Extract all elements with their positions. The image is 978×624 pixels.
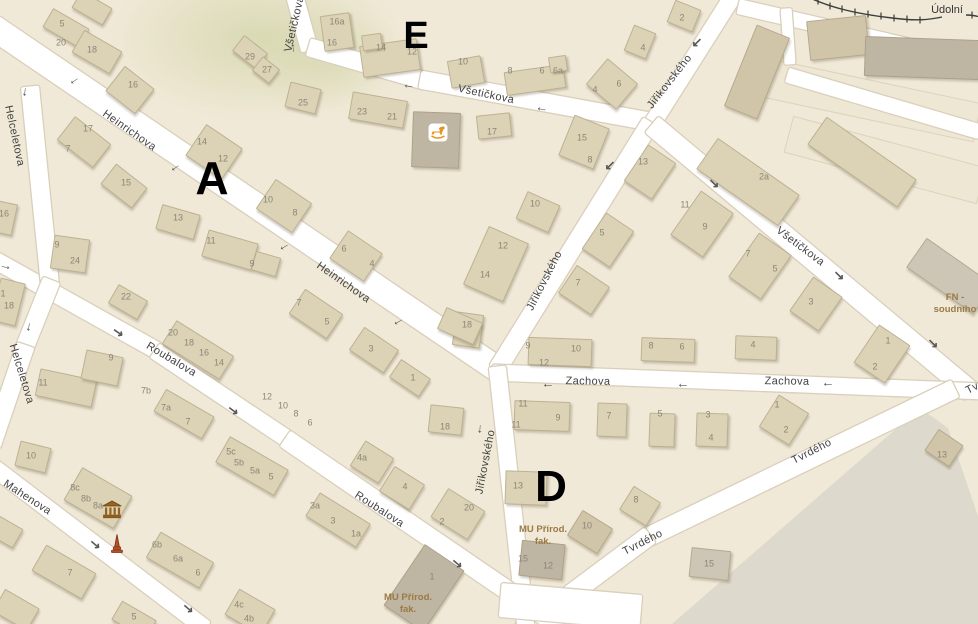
house-number: 3 xyxy=(705,411,710,420)
house-number: 20 xyxy=(56,39,66,48)
building xyxy=(759,394,810,445)
house-number: 10 xyxy=(278,402,288,411)
house-number: 18 xyxy=(4,302,14,311)
house-number: 4 xyxy=(592,86,597,95)
one-way-arrow-icon: ← xyxy=(542,377,555,390)
house-number: 2 xyxy=(872,363,877,372)
house-number: 16a xyxy=(329,18,344,27)
house-number: 10 xyxy=(571,345,581,354)
one-way-arrow-icon: ← xyxy=(534,99,549,114)
house-number: 21 xyxy=(387,113,397,122)
house-number: 6a xyxy=(553,67,563,76)
house-number: 14 xyxy=(480,271,490,280)
one-way-arrow-icon: ↙ xyxy=(605,159,616,172)
monument-icon[interactable] xyxy=(110,534,124,559)
street-label: Helceletova xyxy=(2,105,26,168)
house-number: 16 xyxy=(0,210,9,219)
building xyxy=(619,486,661,527)
house-number: 4 xyxy=(708,434,713,443)
house-number: 7 xyxy=(65,145,70,154)
house-number: 5c xyxy=(226,448,236,457)
street-label: Údolní xyxy=(931,4,963,16)
poi-label: MU Přírod.fak. xyxy=(519,524,567,548)
house-number: 4 xyxy=(402,483,407,492)
house-number: 12 xyxy=(498,242,508,251)
one-way-arrow-icon: ↘ xyxy=(834,269,845,282)
map-marker-a: A xyxy=(195,155,228,201)
house-number: 1 xyxy=(774,401,779,410)
house-number: 23 xyxy=(357,108,367,117)
house-number: 5 xyxy=(657,410,662,419)
one-way-arrow-icon: ↘ xyxy=(89,537,101,551)
building xyxy=(596,402,627,437)
building xyxy=(251,251,282,277)
house-number: 1 xyxy=(429,573,434,582)
house-number: 8 xyxy=(292,209,297,218)
house-number: 2 xyxy=(783,426,788,435)
house-number: 9 xyxy=(249,260,254,269)
museum-icon[interactable] xyxy=(102,501,122,524)
house-number: 1 xyxy=(885,337,890,346)
building xyxy=(153,389,214,440)
house-number: 18 xyxy=(184,339,194,348)
house-number: 4 xyxy=(750,341,755,350)
street-label: Zachova xyxy=(565,376,610,388)
house-number: 5b xyxy=(234,459,244,468)
house-number: 15 xyxy=(577,134,587,143)
one-way-arrow-icon: ↓ xyxy=(476,421,484,435)
house-number: 7 xyxy=(185,418,190,427)
house-number: 6 xyxy=(679,343,684,352)
one-way-arrow-icon: ↘ xyxy=(182,601,194,615)
house-number: 1 xyxy=(410,374,415,383)
house-number: 9 xyxy=(525,342,530,351)
building xyxy=(528,337,593,367)
one-way-arrow-icon: ← xyxy=(402,77,417,92)
poi-label-line: FN - xyxy=(934,292,977,304)
house-number: 11 xyxy=(511,421,520,430)
house-number: 8a xyxy=(93,502,103,511)
house-number: 18 xyxy=(462,321,472,330)
house-number: 1 xyxy=(0,290,5,299)
house-number: 8 xyxy=(648,342,653,351)
house-number: 29 xyxy=(245,53,255,62)
building xyxy=(108,284,148,320)
house-number: 4 xyxy=(640,44,645,53)
house-number: 6 xyxy=(307,419,312,428)
house-number: 4 xyxy=(369,260,374,269)
building xyxy=(567,510,613,555)
house-number: 10 xyxy=(263,196,273,205)
house-number: 7 xyxy=(67,569,72,578)
house-number: 16 xyxy=(128,81,138,90)
poi-label: FN -soudního xyxy=(934,292,977,316)
house-number: 3a xyxy=(310,502,320,511)
house-number: 18 xyxy=(440,423,450,432)
house-number: 16 xyxy=(199,349,209,358)
house-number: 8 xyxy=(293,410,298,419)
house-number: 16 xyxy=(327,39,337,48)
poi-label-line: soudního xyxy=(934,304,977,316)
house-number: 12 xyxy=(262,393,272,402)
house-number: 6 xyxy=(539,67,544,76)
house-number: 2a xyxy=(759,173,769,182)
house-number: 5 xyxy=(268,473,273,482)
house-number: 8 xyxy=(507,67,512,76)
house-number: 9 xyxy=(702,223,707,232)
house-number: 9 xyxy=(108,354,113,363)
one-way-arrow-icon: ↘ xyxy=(709,177,720,190)
house-number: 10 xyxy=(530,200,540,209)
house-number: 13 xyxy=(173,214,183,223)
house-number: 6 xyxy=(341,245,346,254)
house-number: 4c xyxy=(234,601,244,610)
house-number: 14 xyxy=(376,44,386,53)
house-number: 4b xyxy=(244,615,254,624)
house-number: 14 xyxy=(197,138,207,147)
house-number: 7 xyxy=(575,279,580,288)
building xyxy=(735,335,778,360)
building xyxy=(463,226,529,302)
house-number: 4a xyxy=(357,454,367,463)
poi-label: MU Přírod.fak. xyxy=(384,592,432,616)
building xyxy=(289,289,344,340)
house-number: 2 xyxy=(679,14,684,23)
house-number: 2 xyxy=(439,518,444,527)
house-number: 12 xyxy=(543,562,553,571)
building xyxy=(0,589,40,624)
house-number: 5 xyxy=(324,318,329,327)
house-number: 18 xyxy=(87,46,97,55)
house-number: 11 xyxy=(206,237,215,246)
house-number: 13 xyxy=(638,158,648,167)
house-number: 13 xyxy=(937,451,947,460)
street-junction-blob xyxy=(499,583,642,624)
house-number: 8c xyxy=(70,484,80,493)
house-number: 20 xyxy=(464,504,474,513)
house-number: 6 xyxy=(616,80,621,89)
house-number: 6b xyxy=(152,541,162,550)
house-number: 3 xyxy=(330,517,335,526)
one-way-arrow-icon: ↘ xyxy=(227,403,240,417)
house-number: 15 xyxy=(704,560,714,569)
house-number: 13 xyxy=(513,482,523,491)
house-number: 5 xyxy=(131,613,136,622)
one-way-arrow-icon: ← xyxy=(822,376,835,389)
house-number: 7b xyxy=(141,387,151,396)
house-number: 7 xyxy=(745,250,750,259)
building xyxy=(515,191,560,233)
house-number: 20 xyxy=(168,329,178,338)
one-way-arrow-icon: ↘ xyxy=(928,337,939,350)
house-number: 17 xyxy=(487,128,497,137)
street-label: Jiřikovského xyxy=(474,429,497,495)
house-number: 12 xyxy=(539,359,549,368)
house-number: 1a xyxy=(351,530,361,539)
house-number: 11 xyxy=(680,201,689,210)
house-number: 7a xyxy=(161,404,171,413)
house-number: 6a xyxy=(173,555,183,564)
house-number: 5 xyxy=(59,20,64,29)
house-number: 5 xyxy=(599,229,604,238)
rocking-horse-icon[interactable] xyxy=(428,123,449,148)
house-number: 10 xyxy=(582,522,592,531)
house-number: 10 xyxy=(26,452,36,461)
house-number: 14 xyxy=(214,359,224,368)
house-number: 9 xyxy=(555,414,560,423)
house-number: 8 xyxy=(587,156,592,165)
house-number: 6 xyxy=(195,569,200,578)
house-number: 22 xyxy=(121,293,131,302)
one-way-arrow-icon: ↘ xyxy=(112,325,125,340)
one-way-arrow-icon: ↘ xyxy=(451,556,463,570)
house-number: 27 xyxy=(262,66,272,75)
house-number: 3 xyxy=(368,345,373,354)
building xyxy=(349,327,399,374)
one-way-arrow-icon: ↙ xyxy=(692,36,703,49)
house-number: 24 xyxy=(70,257,80,266)
house-number: 25 xyxy=(298,99,308,108)
building xyxy=(864,36,978,80)
building xyxy=(806,15,870,61)
building xyxy=(0,515,24,548)
house-number: 3 xyxy=(808,298,813,307)
poi-label-line: MU Přírod. xyxy=(384,592,432,604)
poi-label-line: fak. xyxy=(384,604,432,616)
house-number: 8 xyxy=(633,496,638,505)
street-map-canvas[interactable]: Údolní16a16141210866a4624292725232117158… xyxy=(0,0,978,624)
one-way-arrow-icon: ← xyxy=(677,377,690,390)
house-number: 7 xyxy=(606,412,611,421)
poi-label-line: MU Přírod. xyxy=(519,524,567,536)
house-number: 5 xyxy=(772,265,777,274)
building xyxy=(31,545,96,600)
house-number: 10 xyxy=(458,58,468,67)
house-number: 5a xyxy=(250,467,260,476)
house-number: 7 xyxy=(296,299,301,308)
house-number: 11 xyxy=(38,379,47,388)
house-number: 8b xyxy=(81,495,91,504)
map-marker-e: E xyxy=(403,17,428,55)
house-number: 9 xyxy=(54,241,59,250)
house-number: 11 xyxy=(518,400,527,409)
house-number: 15 xyxy=(121,179,131,188)
poi-label-line: fak. xyxy=(519,536,567,548)
street-label: Zachova xyxy=(764,376,809,388)
map-marker-d: D xyxy=(535,465,567,509)
house-number: 15 xyxy=(518,555,528,564)
house-number: 17 xyxy=(83,125,93,134)
